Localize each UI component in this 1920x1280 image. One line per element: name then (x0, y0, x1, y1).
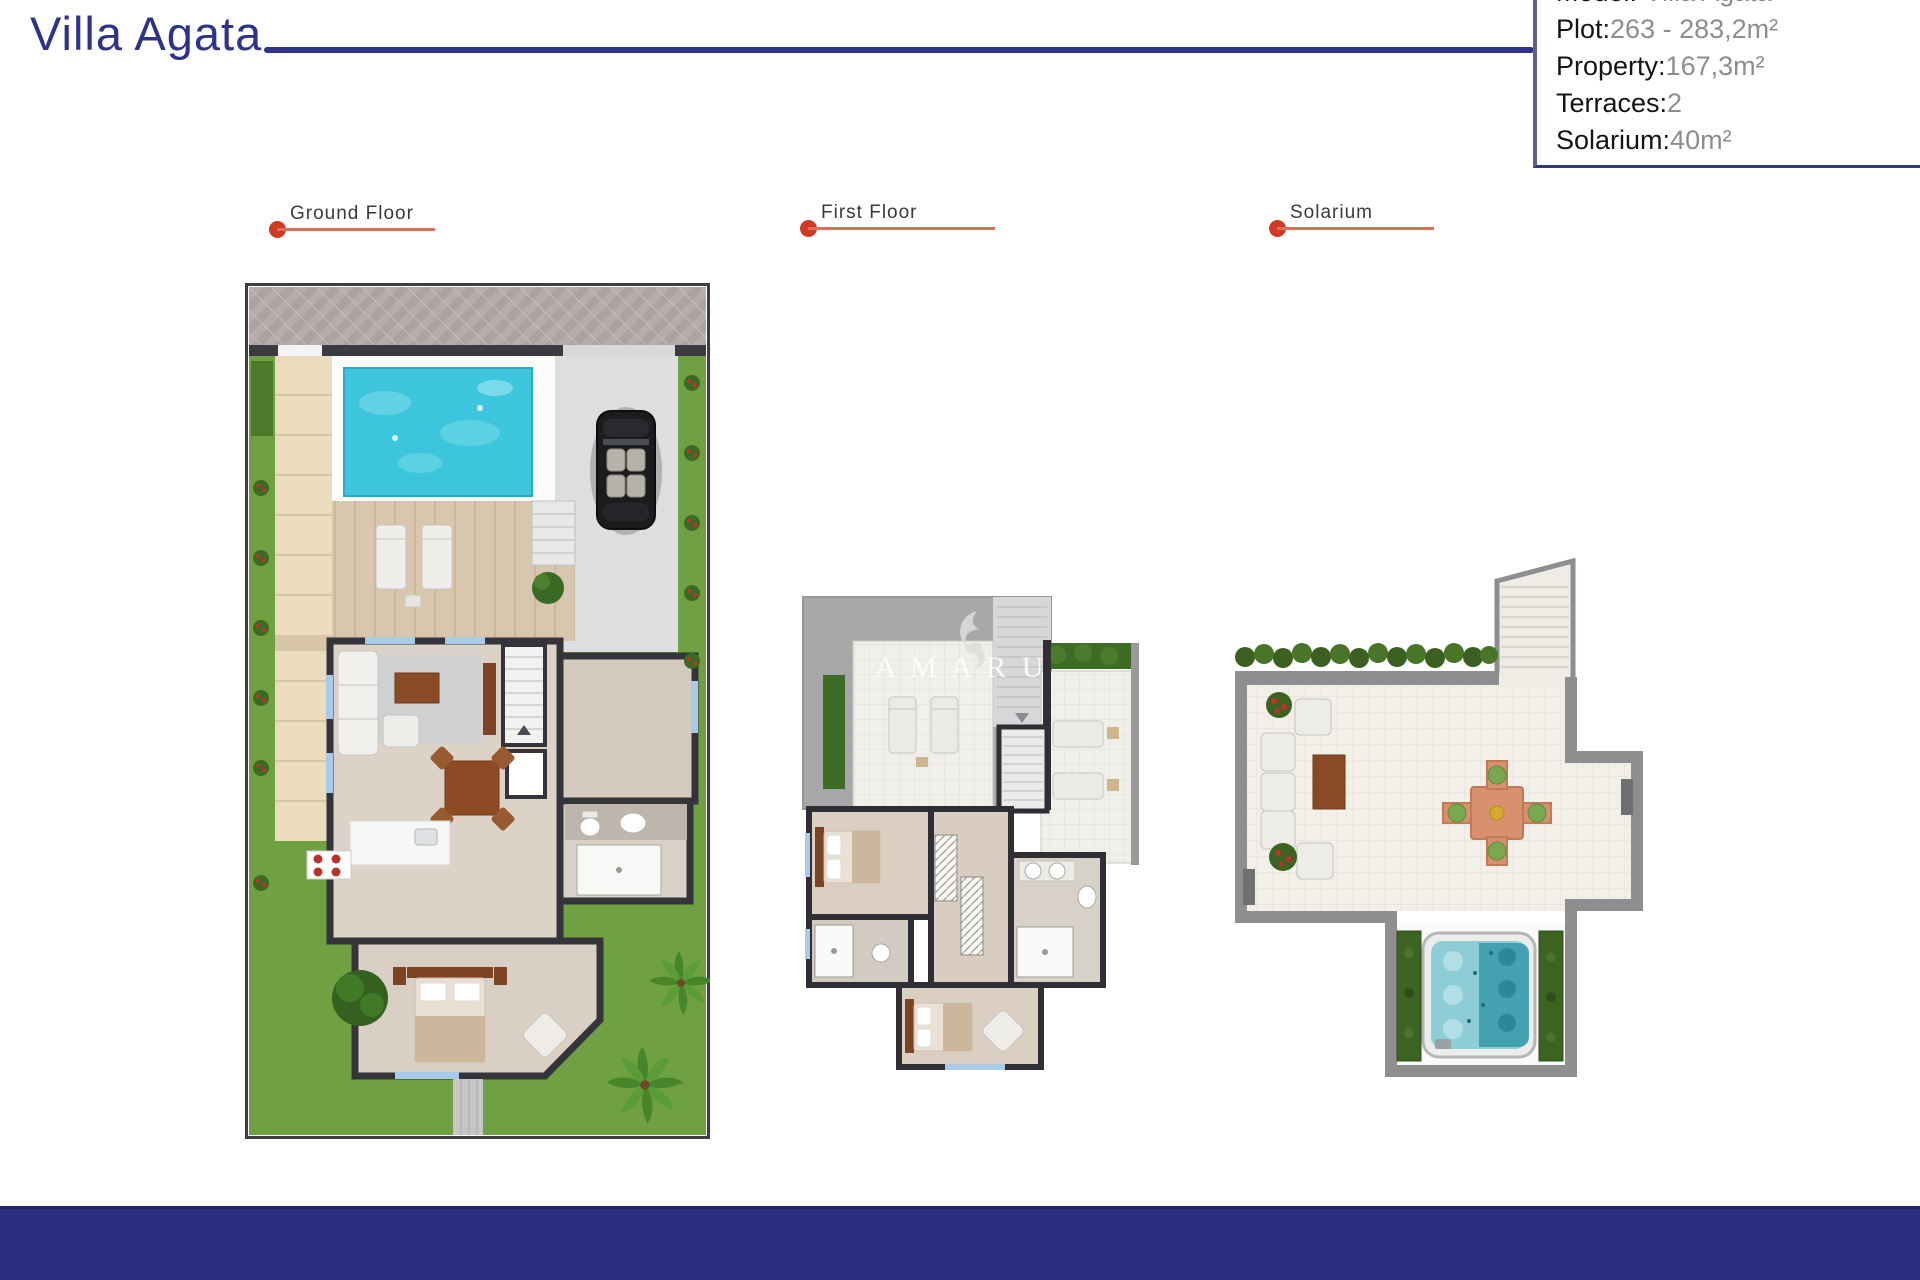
label-text: First Floor (821, 202, 918, 230)
label-underline (1277, 227, 1434, 230)
info-label: Terraces: (1556, 88, 1667, 118)
info-row-solarium: Solarium:40m² (1556, 122, 1920, 159)
info-label: Model: (1556, 0, 1637, 7)
label-first-floor: First Floor (800, 202, 918, 230)
garden-walkway (453, 1079, 483, 1135)
first-floor-plan: A M A R U (795, 585, 1145, 1070)
swimming-pool (344, 368, 532, 496)
info-label: Plot: (1556, 14, 1610, 44)
brochure-page: Villa Agata Model: Villa Agata Plot:263 … (0, 0, 1920, 1280)
bed (815, 827, 880, 887)
info-value: 2 (1667, 88, 1682, 118)
staircase (503, 645, 545, 745)
label-underline (808, 227, 995, 230)
car (590, 407, 662, 535)
planter (823, 675, 845, 789)
info-value: 40m² (1670, 125, 1732, 155)
sitting-room (560, 656, 695, 801)
info-value: Villa Agata (1637, 0, 1772, 7)
info-row-model: Model: Villa Agata (1556, 0, 1920, 11)
front-wall (249, 345, 706, 356)
info-row-property: Property:167,3m² (1556, 48, 1920, 85)
pool-steps (532, 501, 575, 565)
footer-bar (0, 1206, 1920, 1280)
garden-bush (332, 970, 388, 1026)
page-title: Villa Agata (30, 6, 262, 61)
hedge (251, 361, 273, 436)
info-label: Solarium: (1556, 125, 1670, 155)
label-underline (277, 228, 435, 231)
property-info-box: Model: Villa Agata Plot:263 - 283,2m² Pr… (1533, 0, 1920, 168)
label-solarium: Solarium (1269, 202, 1373, 230)
hedge-row (1235, 643, 1498, 668)
info-label: Property: (1556, 51, 1666, 81)
side-terrace (1041, 643, 1139, 865)
info-value: 263 - 283,2m² (1610, 14, 1778, 44)
label-text: Ground Floor (290, 203, 414, 231)
info-row-terraces: Terraces:2 (1556, 85, 1920, 122)
svg-text:A M A R U: A M A R U (875, 651, 1048, 684)
interior-stairs (999, 727, 1047, 811)
wardrobe (961, 877, 983, 955)
living-room-furniture (338, 651, 496, 755)
roof-staircase (1497, 561, 1573, 685)
jacuzzi (1423, 933, 1535, 1057)
info-value: 167,3m² (1666, 51, 1765, 81)
label-ground-floor: Ground Floor (269, 203, 414, 231)
ground-floor-plan (245, 283, 710, 1139)
solarium-plan (1225, 553, 1645, 1080)
street-paving (249, 287, 706, 345)
bed (905, 999, 972, 1053)
label-text: Solarium (1290, 202, 1373, 230)
stone-path (275, 356, 332, 841)
title-rule (264, 47, 1534, 53)
info-row-plot: Plot:263 - 283,2m² (1556, 11, 1920, 48)
stair-landing (1499, 673, 1565, 687)
shrub (532, 572, 564, 604)
wardrobe (935, 835, 957, 901)
